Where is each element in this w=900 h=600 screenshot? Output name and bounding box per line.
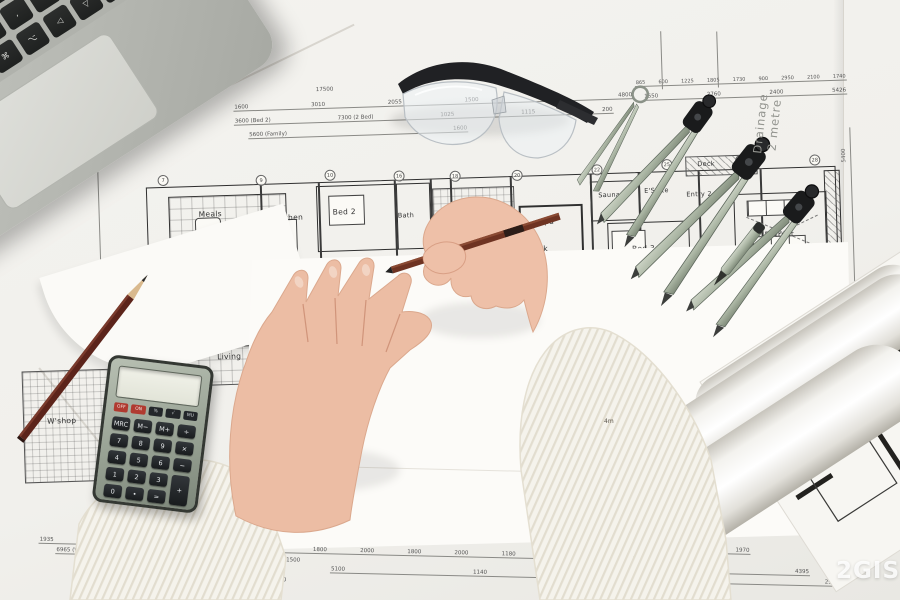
dimension-row: 6965 (W'shop / Garage) <box>55 545 215 558</box>
dimension-row: 12560 <box>660 584 750 595</box>
dimension-value: 1140 <box>472 570 488 576</box>
calculator-key: + <box>169 475 191 507</box>
calculator-key: 1 <box>105 467 124 482</box>
dimension-value: 1390 <box>560 564 576 570</box>
scale-label: 4m <box>604 418 614 425</box>
calculator-key: 3 <box>149 472 168 487</box>
calculator-key: 6 <box>151 455 170 470</box>
calculator-key: 8 <box>131 436 150 451</box>
dimension-value: 1200 <box>712 577 728 583</box>
dimension-value: 4395 <box>794 569 810 575</box>
calculator-key: √ <box>165 408 180 419</box>
calculator-key: MRC <box>111 416 130 431</box>
calculator-key: 0 <box>103 483 122 498</box>
calculator-key: OFF <box>114 402 129 413</box>
calculator-key: 5 <box>129 452 148 467</box>
calculator-key: 7 <box>109 433 128 448</box>
calculator-key: M+ <box>155 421 174 436</box>
laptop-key: ◁ <box>41 3 77 39</box>
dimension-row: 1500 <box>285 554 345 564</box>
photo-blueprint-scene: 17500 160030102055150016004800 3600 (Bed… <box>0 0 900 600</box>
dimension-value: 4420 (Bed 3) <box>558 554 596 560</box>
watermark-2gis: 2GIS <box>836 558 900 584</box>
calculator-key: − <box>173 458 192 473</box>
calculator-key: ON <box>131 404 146 415</box>
dimension-value: 1800 <box>406 550 422 556</box>
dimension-value: 12560 <box>660 587 680 593</box>
dimension-value: 1800 <box>677 567 693 573</box>
dimension-value: 1935 <box>39 537 55 543</box>
calculator-key: 2 <box>127 469 146 484</box>
calculator-key: ÷ <box>177 424 196 439</box>
dimension-value: 3690 <box>600 575 616 581</box>
dimension-value: 1800 <box>312 547 328 553</box>
dimension-value: 5100 <box>330 567 346 573</box>
dimension-value: 24180 <box>268 577 288 583</box>
calculator: OFFON%√MU MRCM−M+÷789×456−123+0•= <box>91 354 214 514</box>
calculator-key: 9 <box>153 438 172 453</box>
dimension-value: 1180 <box>501 552 517 558</box>
dimension-value: 4800 <box>153 540 169 546</box>
dimension-value: 1970 <box>734 548 750 554</box>
calculator-key: M− <box>133 419 152 434</box>
dimension-value: (8300) <box>260 546 280 552</box>
dimension-value: 1390 <box>601 545 617 551</box>
calculator-key: = <box>147 489 166 504</box>
calculator-key: × <box>175 441 194 456</box>
dimension-value: 2000 <box>359 548 375 554</box>
dimension-value: 1500 <box>285 558 301 564</box>
dimension-value: 2000 <box>453 551 469 557</box>
calculator-key: % <box>148 406 163 417</box>
calculator-key: MU <box>183 411 198 422</box>
dimension-value: 6965 (W'shop / Garage) <box>55 548 123 555</box>
calculator-key: 4 <box>107 450 126 465</box>
calculator-key: • <box>125 486 144 501</box>
laptop-key: ⌥ <box>14 21 50 57</box>
calculator-display <box>115 365 202 407</box>
calculator-keypad: MRCM−M+÷789×456−123+0•= <box>103 416 196 507</box>
dimension-row: 24180 <box>268 574 338 585</box>
